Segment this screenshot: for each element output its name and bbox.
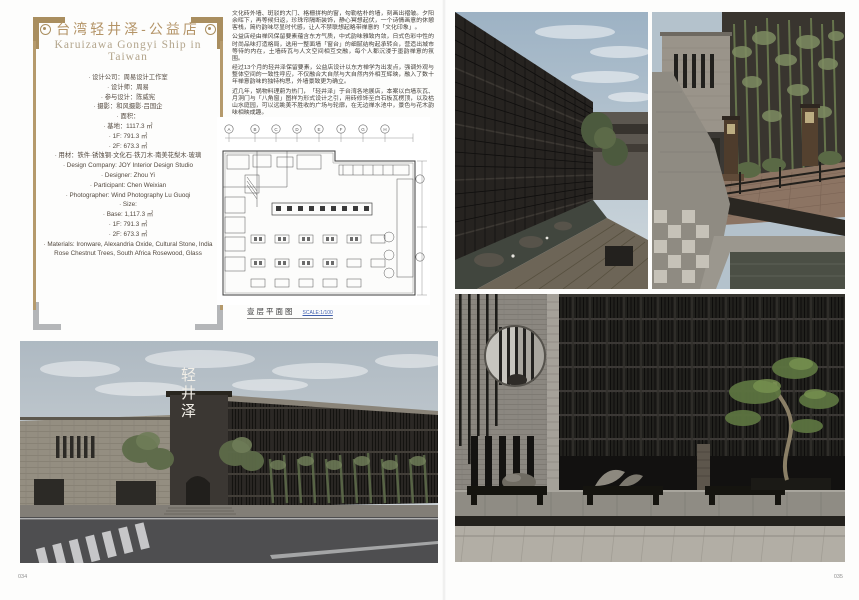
grid-label: A [227,127,230,132]
credits-list: · 设计公司：周易设计工作室 · 设计师：周易 · 参与设计：陈威宪 · 摄影：… [41,73,215,259]
floor-plan: A B C D E F G H [217,117,430,305]
credit-line: · 2F: 673.3 ㎡ [41,142,215,152]
credit-line: · 设计公司：周易设计工作室 [41,73,215,83]
credit-line: · 设计师：周易 [41,83,215,93]
photo-screen-moonwindow-bonsai [455,294,845,562]
frame-corner-bottom-left [33,302,61,330]
credit-line: · Base: 1,117.3 ㎡ [41,210,215,220]
title-row: 台湾轻井泽-公益店 [39,19,217,39]
credit-line: · 参与设计：陈威宪 [41,93,215,103]
grid-label: G [361,127,365,132]
credit-line: · Materials: Ironware, Alexandria Oxide,… [41,240,215,260]
frame-corner-bottom-right [195,302,223,330]
page-gutter [442,0,446,600]
grid-label: E [317,127,320,132]
frame-line-left [33,41,36,310]
credit-line: · 1F: 791.3 ㎡ [41,220,215,230]
credit-line: · 用材：铁件·锈蚀钢·文化石·铁刀木·南美花梨木·玻璃 [41,151,215,161]
credit-line: · 基地：1117.3 ㎡ [41,122,215,132]
plan-caption: 壹层平面图 SCALE:1/100 [247,306,333,319]
credit-line: · 面积： [41,112,215,122]
plan-caption-text: 壹层平面图 [247,306,295,317]
intro-text: 文化砖外墙、斑驳的大门、格栅拼构的窗，勾勒枯朴的墙，刻画出褶皱。夕阳余晖下，再等… [232,11,434,115]
project-title-cn: 台湾轻井泽-公益店 [56,19,200,39]
credit-line: · Photographer: Wind Photography Lu Guoq… [41,191,215,201]
page-number-right: 035 [834,574,843,580]
credit-line: · 2F: 673.3 ㎡ [41,230,215,240]
medallion-icon-right [205,24,216,35]
credit-line: · 摄影：和风摄影·吕国企 [41,102,215,112]
photo-facade-pool [455,12,648,289]
credit-line: · Size: [41,200,215,210]
credit-line: · Participant: Chen Weixian [41,181,215,191]
photo-exterior-street: 轻井泽 [20,341,438,563]
grid-label: B [253,127,256,132]
book-spread: 台湾轻井泽-公益店 Karuizawa Gongyi Ship in Taiwa… [0,0,859,600]
credit-line: · Design Company: JOY Interior Design St… [41,161,215,171]
photo-courtyard-bamboo [652,12,845,289]
grid-label: F [340,127,343,132]
intro-paragraph: 文化砖外墙、斑驳的大门、格栅拼构的窗，勾勒枯朴的墙，刻画出褶皱。夕阳余晖下，再等… [232,11,434,32]
building-sign-calligraphy: 轻井泽 [177,367,195,421]
intro-paragraph: 公益店经由禅风保留要素蕴含东方气质，中式韵味雅致内敛，日式色彩中性的时尚品味打造… [232,34,434,63]
medallion-icon-left [40,24,51,35]
page-number-left: 034 [18,574,27,580]
intro-paragraph: 近几年，锅物料理蔚为热门，「轻井泽」于台湾各地展店，本案以白墙灰瓦、月洞门与「八… [232,89,434,118]
intro-paragraph: 经过13个月的轻井泽保留要素，公益店设计以东方禅学为出发点，强调外观与整体空间的… [232,65,434,86]
project-title-en: Karuizawa Gongyi Ship in Taiwan [33,39,223,63]
credit-line: · 1F: 791.3 ㎡ [41,132,215,142]
floor-plan-drawing: A B C D E F G H [217,117,430,305]
plan-scale-text: SCALE:1/100 [303,310,333,316]
credit-line: · Designer: Zhou Yi [41,171,215,181]
grid-label: H [383,127,386,132]
project-info-panel: 台湾轻井泽-公益店 Karuizawa Gongyi Ship in Taiwa… [33,17,223,330]
